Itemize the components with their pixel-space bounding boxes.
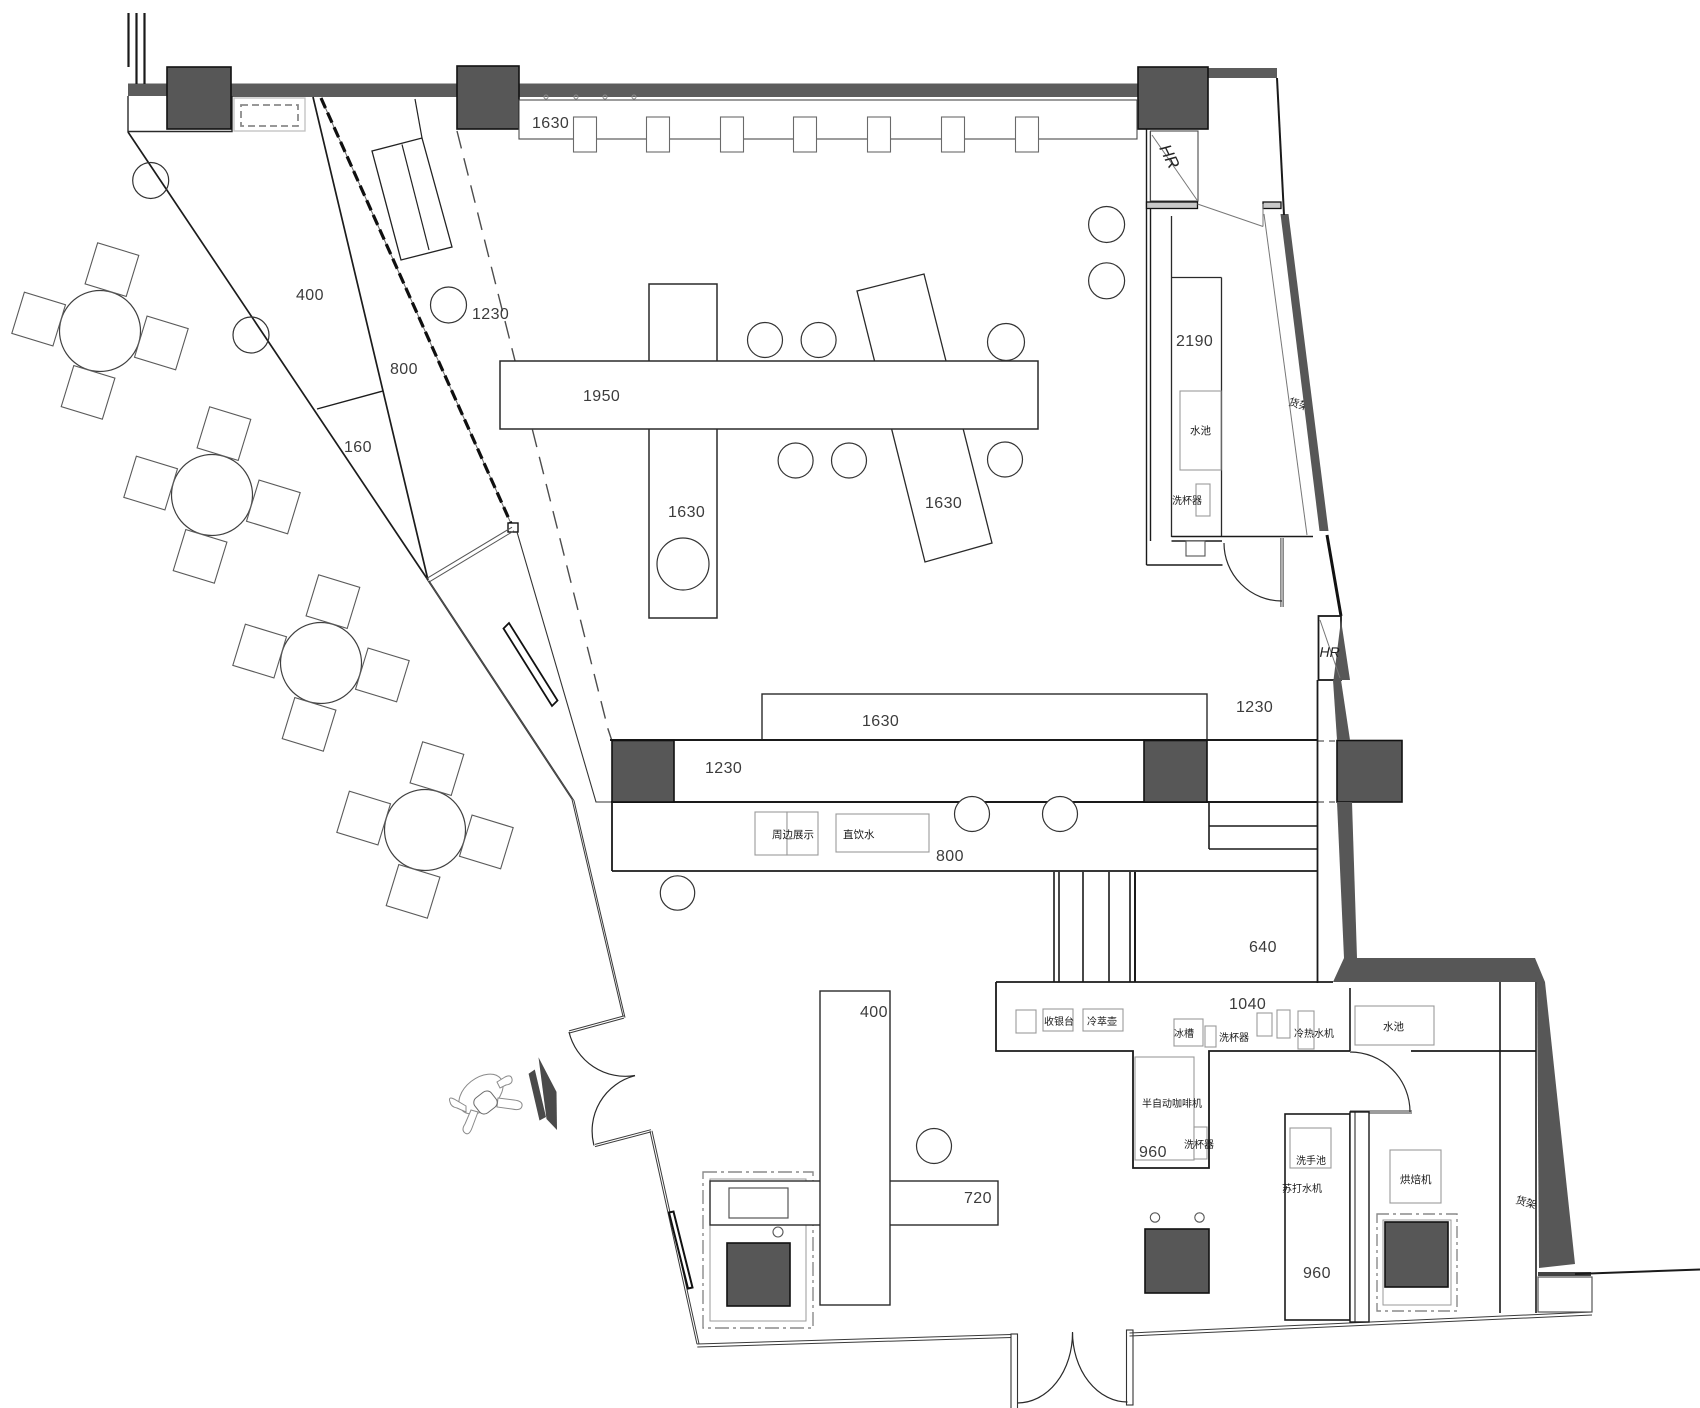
svg-text:160: 160	[344, 439, 372, 456]
svg-text:冷萃壶: 冷萃壶	[1087, 1015, 1117, 1028]
svg-text:400: 400	[860, 1004, 888, 1021]
svg-text:1950: 1950	[583, 388, 620, 405]
svg-text:冰槽: 冰槽	[1174, 1027, 1194, 1040]
svg-text:1040: 1040	[1229, 996, 1266, 1013]
svg-text:冷热水机: 冷热水机	[1294, 1027, 1334, 1040]
svg-text:收银台: 收银台	[1044, 1015, 1074, 1028]
svg-text:1230: 1230	[705, 760, 742, 777]
svg-text:400: 400	[296, 287, 324, 304]
svg-text:HR: HR	[1319, 644, 1339, 660]
svg-text:2190: 2190	[1176, 333, 1213, 350]
svg-text:1630: 1630	[925, 495, 962, 512]
svg-text:1230: 1230	[472, 306, 509, 323]
svg-text:水池: 水池	[1383, 1020, 1405, 1033]
svg-text:周边展示: 周边展示	[772, 829, 814, 841]
svg-text:1630: 1630	[668, 504, 705, 521]
svg-text:960: 960	[1303, 1265, 1331, 1282]
svg-text:720: 720	[964, 1190, 992, 1207]
svg-text:洗手池: 洗手池	[1296, 1154, 1326, 1167]
svg-text:半自动咖啡机: 半自动咖啡机	[1142, 1097, 1202, 1110]
svg-text:洗杯器: 洗杯器	[1184, 1138, 1214, 1151]
svg-text:直饮水: 直饮水	[843, 828, 875, 841]
svg-text:苏打水机: 苏打水机	[1282, 1182, 1322, 1195]
svg-text:1630: 1630	[532, 115, 569, 132]
svg-text:1230: 1230	[1236, 699, 1273, 716]
svg-text:洗杯器: 洗杯器	[1172, 494, 1202, 507]
svg-text:800: 800	[936, 848, 964, 865]
svg-text:960: 960	[1139, 1144, 1167, 1161]
svg-text:水池: 水池	[1190, 424, 1212, 437]
svg-text:640: 640	[1249, 939, 1277, 956]
svg-text:800: 800	[390, 361, 418, 378]
svg-text:洗杯器: 洗杯器	[1219, 1031, 1249, 1044]
svg-text:烘焙机: 烘焙机	[1400, 1173, 1432, 1186]
svg-text:货架: 货架	[1514, 1193, 1538, 1211]
svg-text:1630: 1630	[862, 713, 899, 730]
